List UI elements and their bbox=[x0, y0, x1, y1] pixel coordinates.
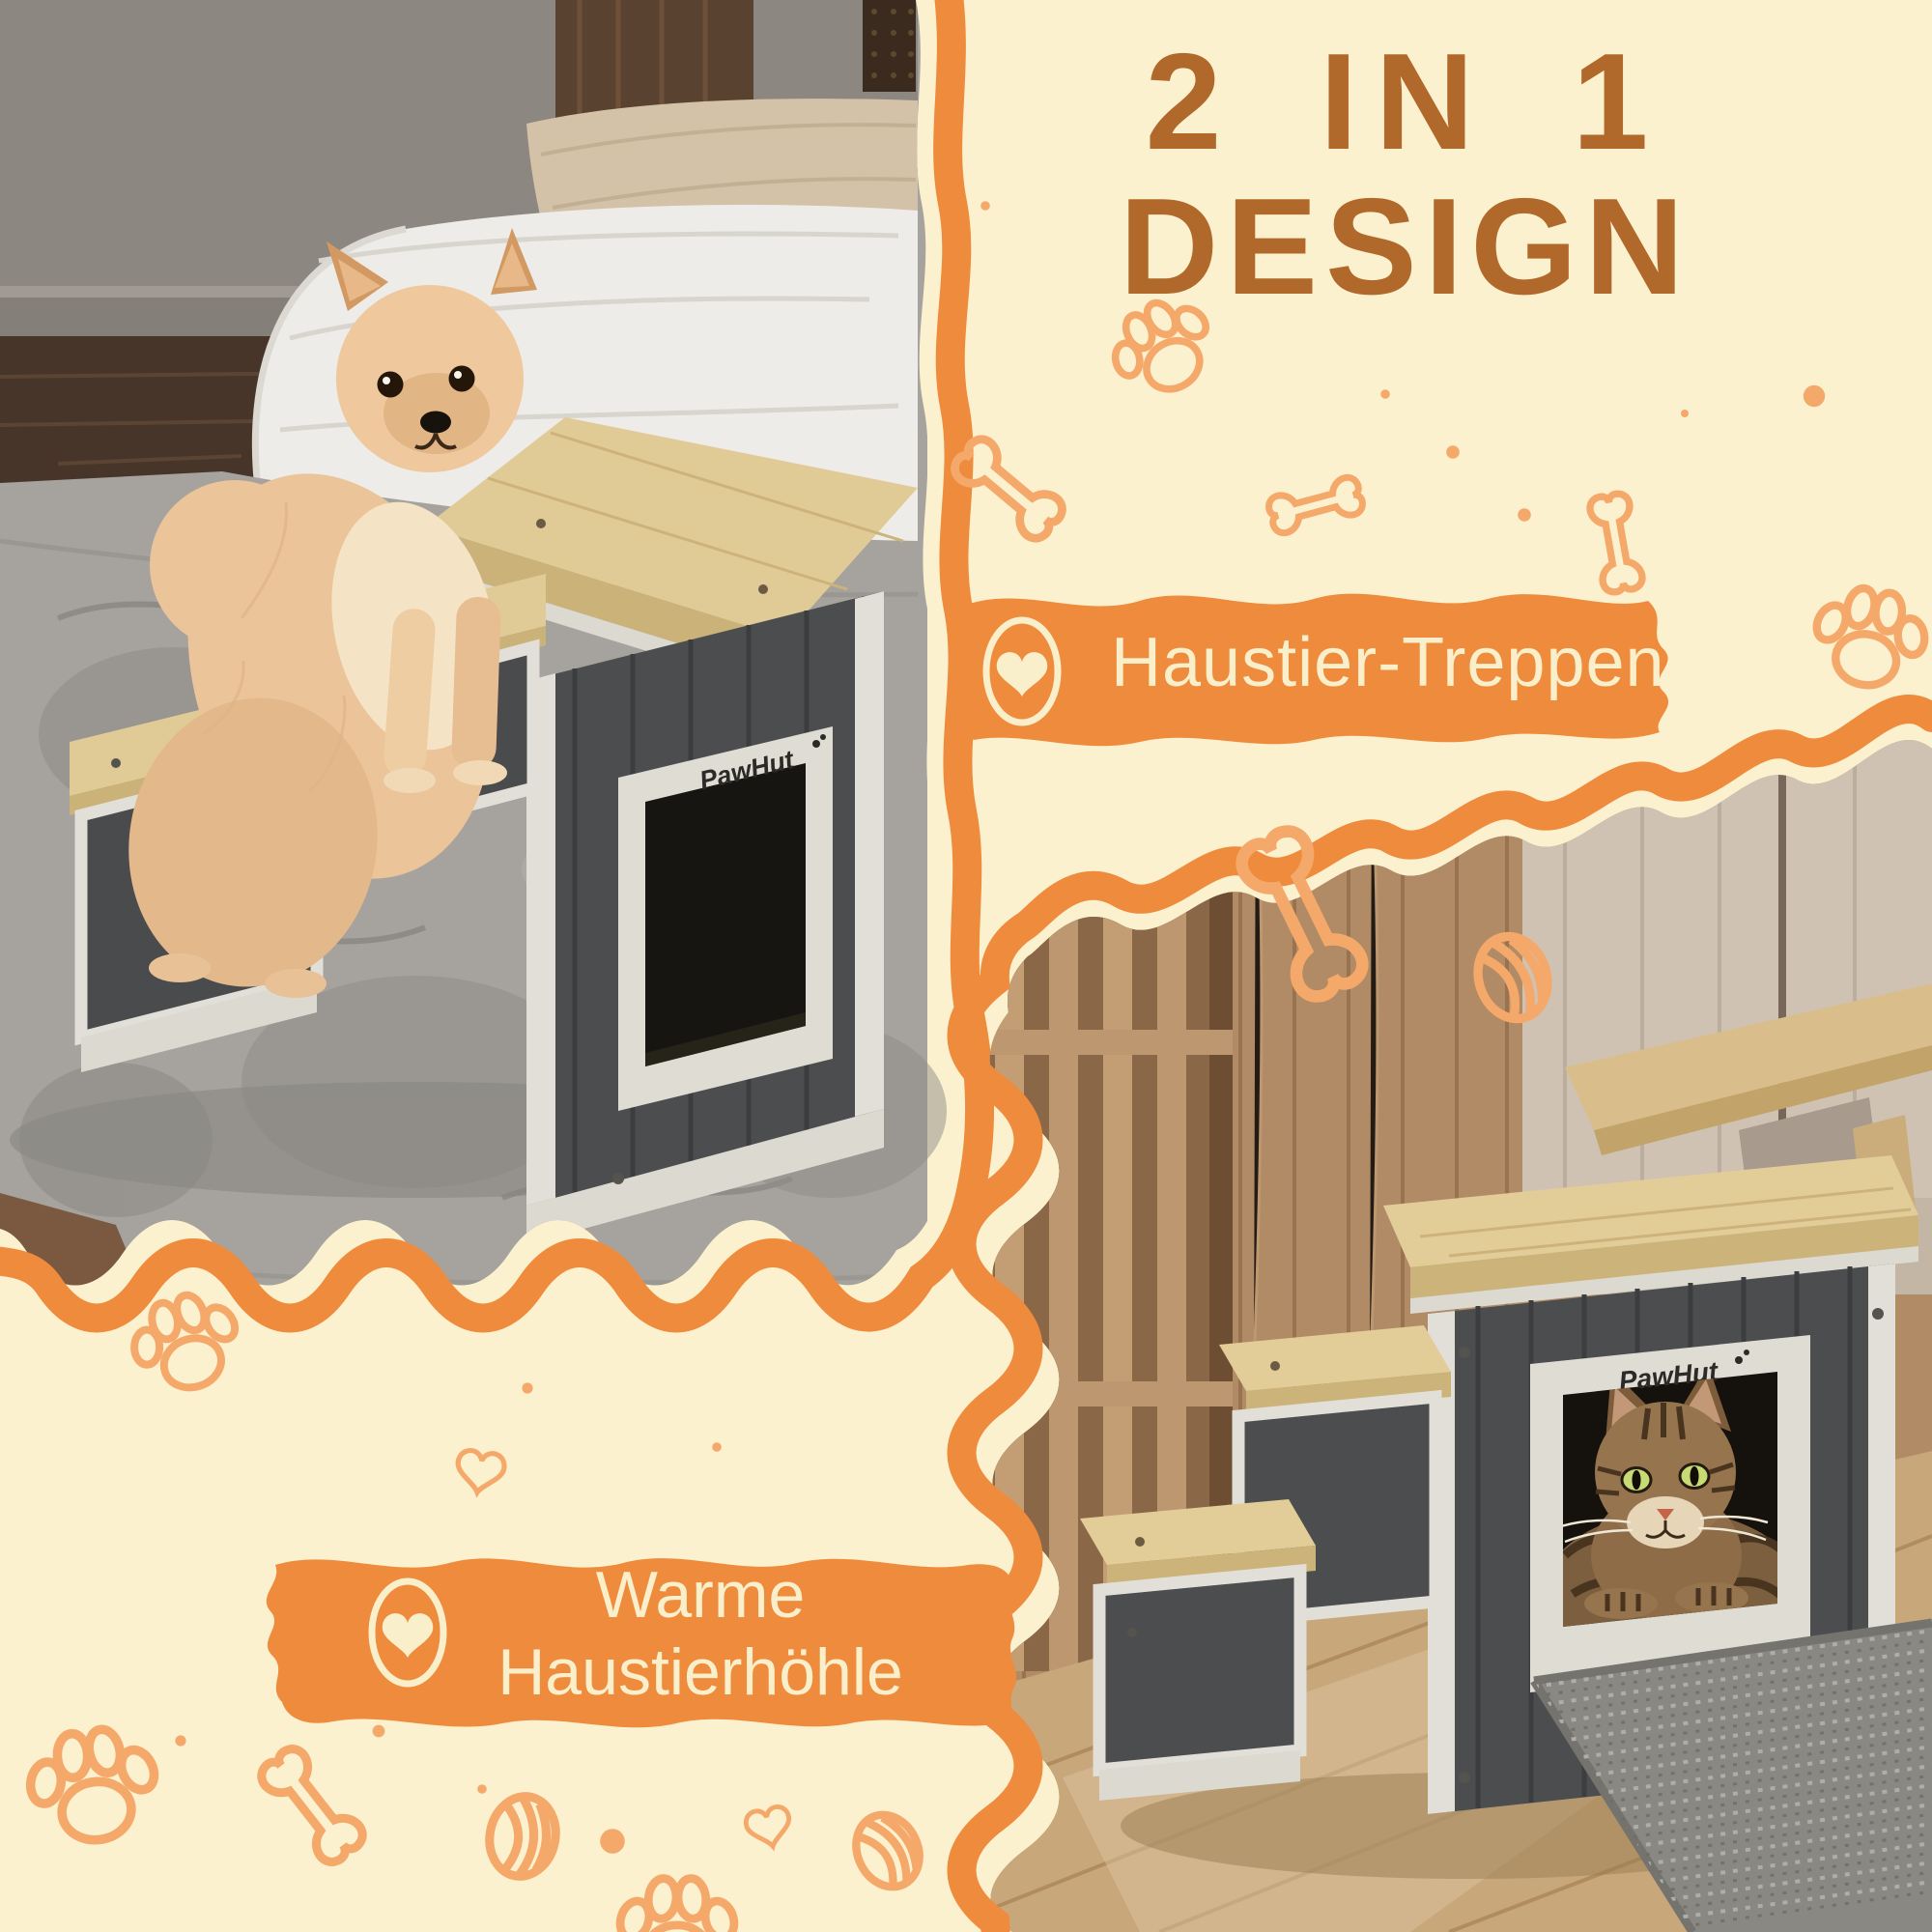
dot-icon bbox=[373, 1725, 385, 1738]
badge-label-pet-cave: Warme Haustierhöhle bbox=[444, 1546, 956, 1721]
dot-icon bbox=[1518, 508, 1531, 522]
dot-icon bbox=[1446, 445, 1460, 459]
dot-icon bbox=[600, 1829, 625, 1854]
title-line-1: 2 IN 1 bbox=[1067, 29, 1744, 176]
badge-label-pet-stairs: Haustier-Treppen bbox=[1111, 580, 1666, 746]
dot-icon bbox=[1804, 385, 1825, 407]
badge-label-pet-cave-line2: Haustierhöhle bbox=[497, 1634, 903, 1711]
dot-icon bbox=[175, 1735, 185, 1746]
title-line-2: DESIGN bbox=[1067, 176, 1744, 319]
dot-icon bbox=[712, 1442, 722, 1452]
dot-icon bbox=[1681, 410, 1689, 417]
dot-icon bbox=[522, 1382, 532, 1393]
rattan-panel bbox=[863, 0, 916, 92]
dot-icon bbox=[1380, 389, 1390, 399]
page-title: 2 IN 1 DESIGN bbox=[1067, 29, 1744, 319]
dot-icon bbox=[477, 1784, 487, 1794]
product-infographic: PawHut bbox=[0, 0, 1932, 1932]
dog-photo: PawHut bbox=[0, 0, 947, 1352]
dot-icon bbox=[980, 201, 990, 211]
badge-label-pet-cave-line1: Warme bbox=[596, 1556, 806, 1634]
